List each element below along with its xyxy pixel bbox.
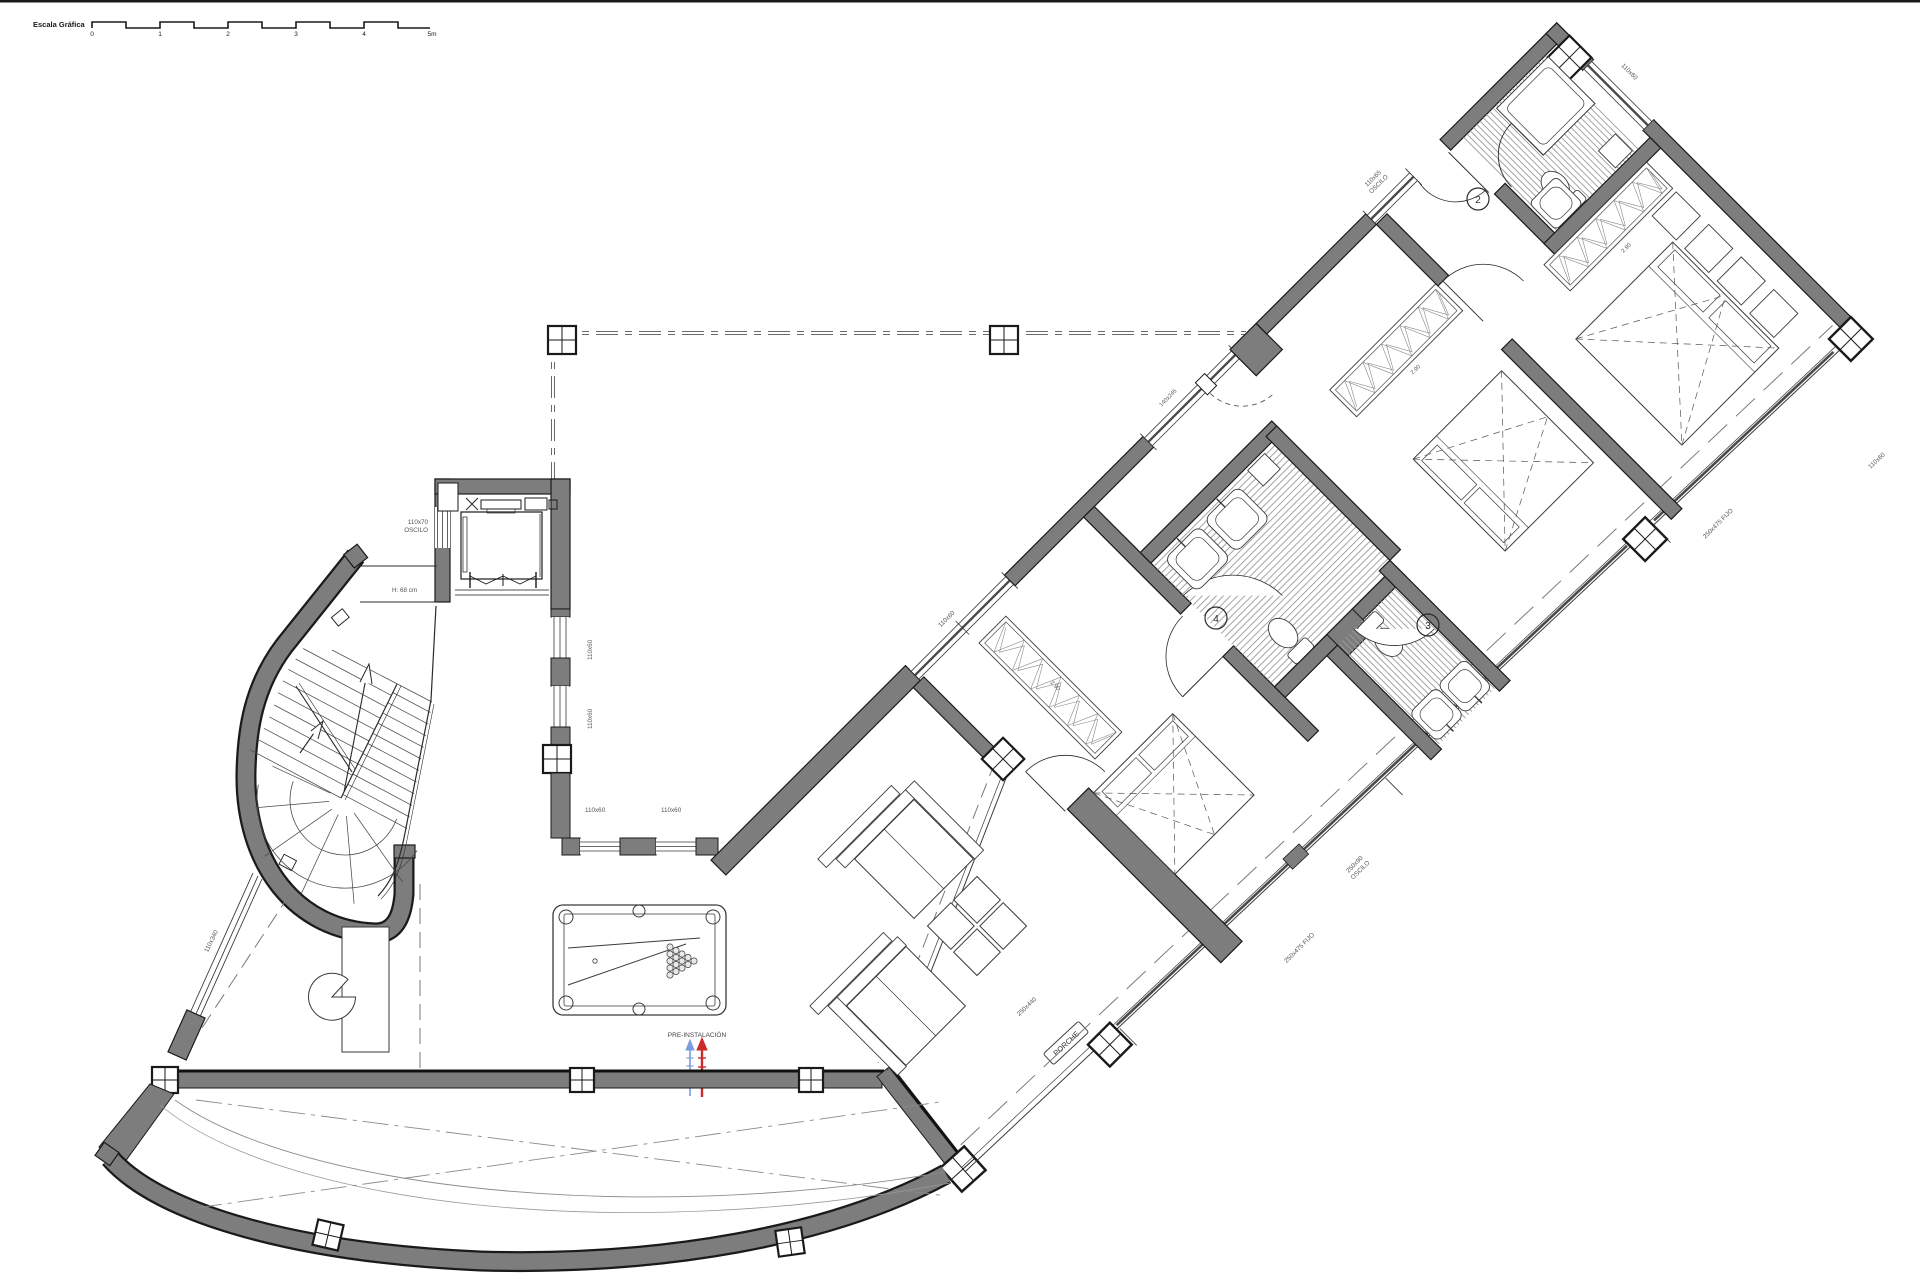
svg-text:3: 3	[1425, 621, 1431, 632]
svg-text:110x60: 110x60	[587, 708, 594, 729]
svg-text:110x60: 110x60	[585, 807, 606, 814]
svg-text:5m: 5m	[427, 31, 436, 38]
svg-text:PRE-INSTALACIÓN: PRE-INSTALACIÓN	[668, 1030, 727, 1039]
svg-text:4: 4	[362, 31, 366, 38]
svg-text:3: 3	[294, 31, 298, 38]
svg-text:1: 1	[158, 31, 162, 38]
svg-text:110x60: 110x60	[587, 639, 594, 660]
svg-text:0: 0	[90, 31, 94, 38]
svg-text:110x60: 110x60	[661, 807, 682, 814]
svg-text:110x70: 110x70	[408, 519, 429, 526]
svg-text:2: 2	[1475, 195, 1481, 206]
svg-text:Escala Gráfica: Escala Gráfica	[33, 20, 86, 29]
svg-text:H: 68 cm: H: 68 cm	[392, 587, 417, 594]
svg-text:OSCILO: OSCILO	[404, 527, 428, 534]
svg-text:4: 4	[1213, 614, 1219, 625]
svg-text:2: 2	[226, 31, 230, 38]
